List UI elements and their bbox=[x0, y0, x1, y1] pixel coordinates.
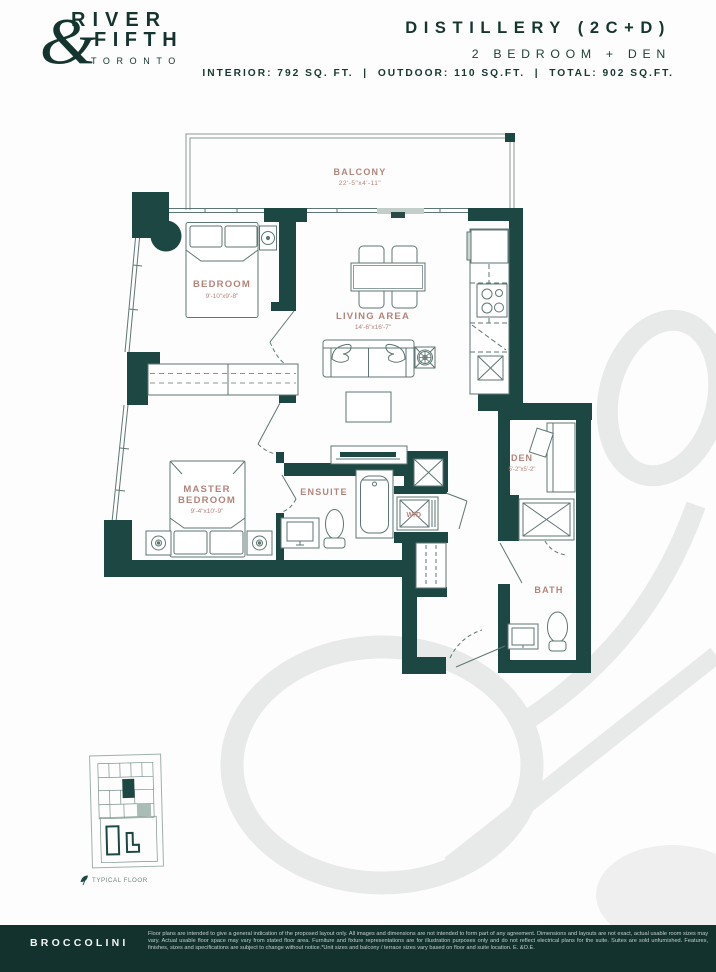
svg-text:DEN: DEN bbox=[511, 453, 533, 463]
svg-text:&: & bbox=[40, 6, 98, 79]
svg-text:22'-5"x4'-11": 22'-5"x4'-11" bbox=[339, 180, 382, 187]
svg-text:FIFTH: FIFTH bbox=[94, 29, 183, 51]
svg-text:BATH: BATH bbox=[534, 585, 563, 595]
svg-text:MASTER: MASTER bbox=[183, 484, 230, 495]
svg-text:LIVING AREA: LIVING AREA bbox=[336, 311, 410, 322]
svg-text:W/D: W/D bbox=[406, 512, 421, 519]
svg-text:9'-10"x9'-8": 9'-10"x9'-8" bbox=[206, 293, 239, 300]
svg-text:BEDROOM: BEDROOM bbox=[193, 279, 251, 290]
svg-text:9'-4"x10'-9": 9'-4"x10'-9" bbox=[191, 508, 224, 515]
svg-text:14'-6"x16'-7": 14'-6"x16'-7" bbox=[355, 324, 392, 331]
svg-text:BEDROOM: BEDROOM bbox=[178, 495, 236, 506]
svg-text:TYPICAL FLOOR: TYPICAL FLOOR bbox=[92, 877, 148, 884]
svg-text:BALCONY: BALCONY bbox=[334, 167, 387, 177]
svg-text:TORONTO: TORONTO bbox=[91, 56, 182, 66]
svg-text:5'-2"x5'-2": 5'-2"x5'-2" bbox=[509, 467, 536, 473]
svg-text:ENSUITE: ENSUITE bbox=[300, 487, 347, 497]
